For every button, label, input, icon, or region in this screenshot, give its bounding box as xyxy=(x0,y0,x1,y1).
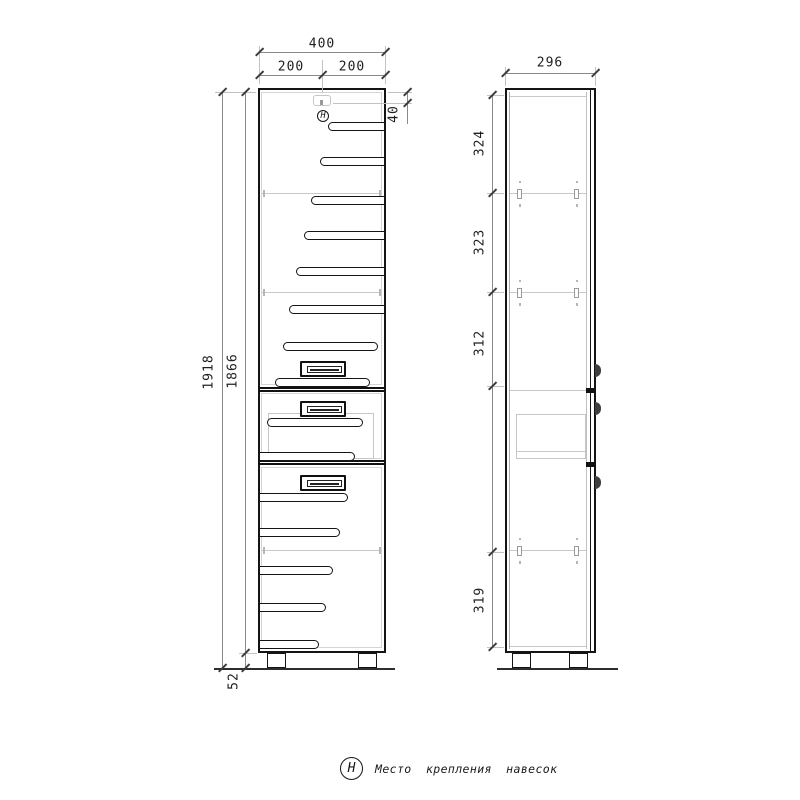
dowel-mark xyxy=(574,288,579,298)
door-slat xyxy=(289,305,385,315)
handle-profile xyxy=(595,476,601,489)
top-panel-line xyxy=(510,96,586,97)
dim-line-depth xyxy=(505,73,596,74)
side-carcass-outline xyxy=(505,88,596,653)
dowel-mark xyxy=(574,189,579,199)
door-slat xyxy=(259,566,333,576)
door-slat xyxy=(259,603,326,613)
handle-grip-line xyxy=(310,483,339,485)
side-leg xyxy=(512,653,531,668)
hanger-marker-icon: Н xyxy=(317,110,329,122)
front-leg xyxy=(267,653,286,668)
door-slat xyxy=(296,267,385,277)
side-leg xyxy=(569,653,588,668)
back-panel-line xyxy=(509,92,510,649)
handle-recess xyxy=(307,480,342,487)
drawer-handle xyxy=(300,401,346,417)
dim-leg-height: 52 xyxy=(227,672,242,690)
door-gap xyxy=(586,462,596,467)
legend-text: Место крепления навесок xyxy=(375,762,557,776)
drawer-bottom-line xyxy=(517,451,585,452)
door-slat xyxy=(283,342,378,352)
top-door-handle xyxy=(300,361,346,377)
dowel-mark xyxy=(517,189,522,199)
dim-total-width: 400 xyxy=(309,37,335,52)
dim-line-total-width xyxy=(259,52,386,53)
door-slat xyxy=(259,640,319,650)
divider-line xyxy=(258,463,386,465)
bottom-panel-line xyxy=(510,646,586,647)
shelf-line xyxy=(262,193,382,195)
shelf-line xyxy=(262,292,382,294)
dim-depth: 296 xyxy=(537,56,563,71)
door-slat xyxy=(275,378,370,388)
handle-recess xyxy=(307,366,342,373)
dim-total-height: 1918 xyxy=(202,354,217,389)
extension-line xyxy=(333,103,412,104)
door-gap xyxy=(586,388,596,393)
legend-symbol: Н xyxy=(348,761,356,776)
bottom-door-handle xyxy=(300,475,346,491)
door-slat xyxy=(259,528,340,538)
door-slat xyxy=(304,231,385,241)
dim-line-hanger-offset xyxy=(407,92,408,124)
extension-line xyxy=(239,653,257,654)
handle-recess xyxy=(307,406,342,413)
dim-line-body-height xyxy=(245,92,246,668)
handle-profile xyxy=(595,402,601,415)
dowel-mark xyxy=(517,546,522,556)
dim-sect-middle: 312 xyxy=(473,330,488,356)
dim-hanger-offset: 40 xyxy=(387,105,402,123)
dim-left-half: 200 xyxy=(278,59,304,74)
divider-line xyxy=(258,390,386,392)
door-slat xyxy=(320,157,385,167)
drawer-zone-line xyxy=(510,390,586,391)
door-front-line xyxy=(590,89,592,652)
dim-body-height: 1866 xyxy=(226,353,241,388)
door-slat xyxy=(311,196,385,206)
handle-grip-line xyxy=(310,369,339,371)
shelf-line xyxy=(262,550,382,552)
dowel-mark xyxy=(517,288,522,298)
hanger-bracket-pin xyxy=(320,100,323,105)
dim-line-total-height xyxy=(222,92,223,668)
handle-grip-line xyxy=(310,409,339,411)
dowel-mark xyxy=(574,546,579,556)
drawer-side-profile xyxy=(516,414,586,459)
drawer-slat xyxy=(267,418,363,428)
floor-line xyxy=(497,668,618,670)
technical-drawing-canvas: Н xyxy=(0,0,800,800)
drawer-slat xyxy=(259,452,355,462)
door-slat xyxy=(328,122,385,132)
front-leg xyxy=(358,653,377,668)
dim-sect-top: 324 xyxy=(473,130,488,156)
hanger-marker-letter: Н xyxy=(320,111,325,121)
dim-sect-bottom: 319 xyxy=(473,587,488,613)
legend-hanger-icon: Н xyxy=(340,757,363,780)
door-slat xyxy=(259,493,348,503)
carcass-front-edge-line xyxy=(586,92,587,649)
handle-profile xyxy=(595,364,601,377)
dim-line-side-chain xyxy=(492,95,493,647)
dim-right-half: 200 xyxy=(339,59,365,74)
dim-sect-upper: 323 xyxy=(473,229,488,255)
